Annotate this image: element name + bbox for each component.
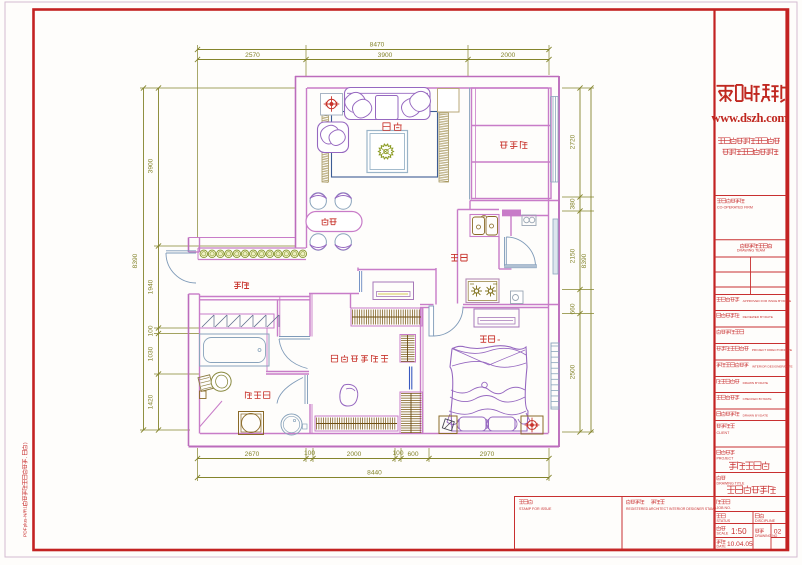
svg-text:1030: 1030	[148, 346, 155, 361]
svg-text:2500: 2500	[570, 364, 577, 379]
svg-text:DATE: DATE	[717, 545, 727, 549]
svg-text:2150: 2150	[570, 248, 577, 263]
svg-text:2000: 2000	[347, 451, 362, 458]
svg-text:8470: 8470	[370, 42, 385, 49]
svg-text:REGISTERED ARCHITECT INTERIO: REGISTERED ARCHITECT INTERIOR DESIGNER S…	[626, 507, 717, 511]
svg-text:SCALE: SCALE	[717, 532, 729, 536]
svg-text:www.dszh.com: www.dszh.com	[711, 111, 788, 125]
svg-text:380: 380	[570, 198, 577, 209]
svg-text:STAMP FOR ISSUE: STAMP FOR ISSUE	[519, 507, 552, 511]
svg-text:DRAWN BY/DATE: DRAWN BY/DATE	[743, 381, 768, 385]
svg-text:2000: 2000	[501, 52, 516, 59]
svg-text:APPROVED FOR ISSUE BY/DATE: APPROVED FOR ISSUE BY/DATE	[743, 299, 792, 303]
svg-text:8390: 8390	[132, 253, 139, 268]
svg-text:10.04.05: 10.04.05	[727, 541, 753, 548]
svg-text:100: 100	[148, 325, 155, 336]
svg-text:8390: 8390	[581, 253, 588, 268]
svg-text:2570: 2570	[245, 52, 260, 59]
svg-text:1:50: 1:50	[731, 527, 747, 536]
svg-text:DRAWING TEAM: DRAWING TEAM	[737, 249, 765, 253]
svg-text:2970: 2970	[480, 451, 495, 458]
svg-text:100: 100	[392, 450, 403, 457]
svg-text:8440: 8440	[367, 470, 382, 477]
svg-text:DRAWING TITLE: DRAWING TITLE	[717, 482, 746, 486]
svg-text:CLIENT: CLIENT	[717, 431, 731, 435]
svg-text:3900: 3900	[378, 52, 393, 59]
svg-text:REVIEWED BY/DATE: REVIEWED BY/DATE	[743, 315, 773, 319]
svg-text:INTERIOR DESIGNER/DATE: INTERIOR DESIGNER/DATE	[752, 365, 793, 369]
svg-text:2670: 2670	[245, 451, 260, 458]
svg-text:02: 02	[774, 529, 782, 536]
svg-text:600: 600	[407, 451, 418, 458]
svg-text:1940: 1940	[148, 279, 155, 294]
svg-text:CO-OPERATED FIRM: CO-OPERATED FIRM	[717, 206, 753, 210]
svg-text:660: 660	[570, 303, 577, 314]
svg-text:1420: 1420	[148, 394, 155, 409]
svg-text:DISCIPLINE: DISCIPLINE	[755, 519, 776, 523]
svg-text:PROJECT: PROJECT	[717, 457, 735, 461]
svg-text:CHECKED BY/DATE: CHECKED BY/DATE	[743, 397, 772, 401]
svg-text:PDFplus-N/R1(: PDFplus-N/R1(	[23, 504, 29, 537]
svg-text:STATUS: STATUS	[717, 519, 731, 523]
svg-text:2720: 2720	[570, 134, 577, 149]
svg-text:PROJECT DIRECTOR/DATE: PROJECT DIRECTOR/DATE	[752, 348, 792, 352]
svg-text:3900: 3900	[148, 158, 155, 173]
svg-text:DRAWN BY/DATE: DRAWN BY/DATE	[743, 414, 768, 418]
svg-text:JOB NO.: JOB NO.	[717, 506, 731, 510]
svg-text:,: ,	[24, 457, 29, 458]
